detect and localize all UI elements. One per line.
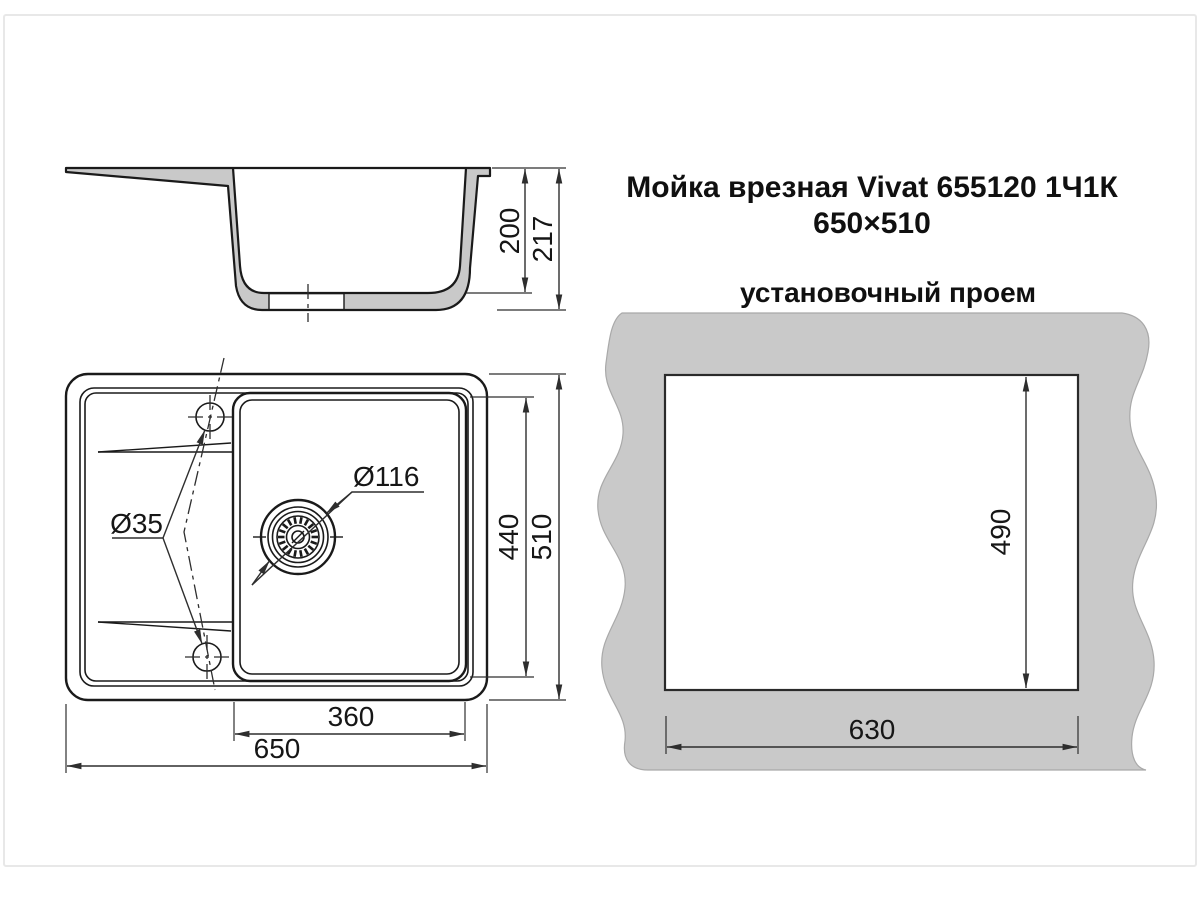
drainboard-groove — [98, 622, 231, 631]
dim-text-total-width: 650 — [254, 733, 301, 764]
dim-text-cutout-height: 490 — [985, 509, 1016, 556]
dim-text-cutout-width: 630 — [849, 714, 896, 745]
section-view: 200 217 — [66, 168, 566, 322]
label-drain-diameter: Ø116 — [353, 461, 419, 492]
leader-arrow — [252, 561, 270, 585]
dim-text-total-height: 217 — [527, 216, 558, 263]
dim-text-bowl-length: 440 — [493, 514, 524, 561]
strainer-tooth — [308, 524, 313, 528]
strainer-tooth — [279, 530, 285, 532]
leader-arrow — [326, 492, 352, 513]
product-title: Мойка врезная Vivat 655120 1Ч1К — [626, 171, 1118, 204]
strainer-tooth — [311, 542, 317, 544]
drain-recess-gap — [269, 295, 344, 309]
sink-dimension-diagram: 200 217 — [0, 0, 1200, 900]
strainer-tooth — [300, 517, 301, 523]
product-size: 650×510 — [813, 207, 931, 240]
title-block: Мойка врезная Vivat 655120 1Ч1К 650×510 … — [626, 171, 1118, 308]
opening-view: 490 630 — [598, 313, 1157, 770]
section-profile — [66, 168, 490, 310]
dim-text-inner-depth: 200 — [494, 208, 525, 255]
faucet-axis-line — [184, 358, 224, 690]
plan-view: Ø35 Ø116 440 510 360 650 — [66, 358, 566, 773]
drainboard-groove — [98, 443, 231, 452]
label-faucet-diameter: Ø35 — [110, 508, 163, 539]
strainer-tooth — [305, 520, 308, 526]
dim-text-bowl-width: 360 — [328, 701, 375, 732]
strainer-tooth — [279, 542, 285, 544]
cutout-rect — [665, 375, 1078, 690]
strainer-tooth — [283, 546, 288, 550]
strainer-tooth — [295, 550, 296, 556]
dim-text-total-length: 510 — [526, 514, 557, 561]
strainer-tooth — [311, 530, 317, 532]
strainer-tooth — [300, 550, 301, 556]
opening-label: установочный проем — [740, 277, 1036, 308]
strainer-tooth — [283, 524, 288, 528]
strainer-tooth — [288, 520, 291, 526]
strainer-tooth — [308, 546, 313, 550]
drawing-canvas: 200 217 — [0, 0, 1200, 900]
strainer-tooth — [295, 517, 296, 523]
strainer-tooth — [305, 549, 308, 555]
